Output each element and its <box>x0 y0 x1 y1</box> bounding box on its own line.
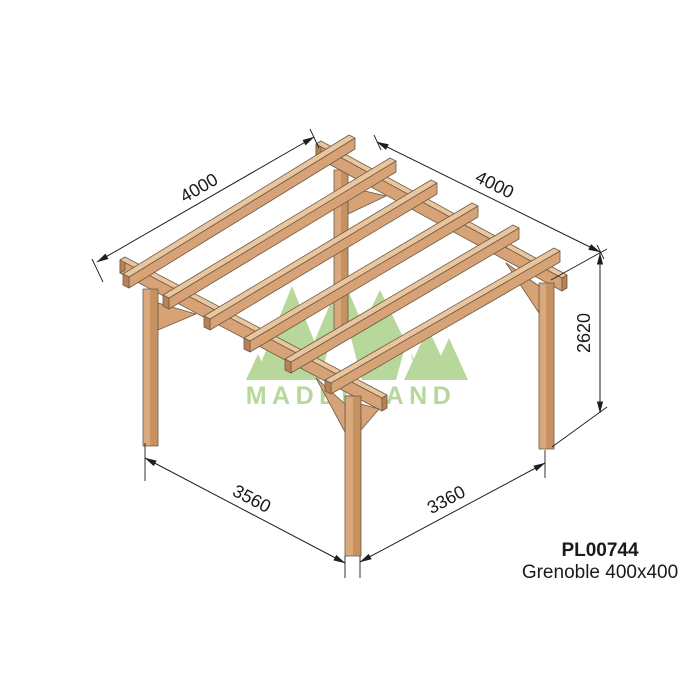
knee-brace-front-right <box>361 404 379 430</box>
dimension-label-height: 2620 <box>574 313 594 353</box>
dimension-label-base-left: 3560 <box>229 481 274 517</box>
product-name: Grenoble 400x400 <box>522 562 678 583</box>
product-label: PL00744 Grenoble 400x400 <box>522 540 678 583</box>
dimension-label-roof-width: 4000 <box>472 167 517 203</box>
post-front <box>345 396 361 556</box>
pergola-technical-drawing: MADERLAND <box>0 0 700 700</box>
dimension-base-right: 3360 <box>360 450 545 578</box>
post-left <box>143 289 158 446</box>
product-code: PL00744 <box>561 540 639 561</box>
dimension-base-left: 3560 <box>145 443 345 578</box>
dimension-label-base-right: 3360 <box>424 481 469 518</box>
dimension-label-roof-depth: 4000 <box>177 169 222 206</box>
post-right <box>539 283 554 449</box>
drawing-svg: MADERLAND <box>0 0 700 700</box>
